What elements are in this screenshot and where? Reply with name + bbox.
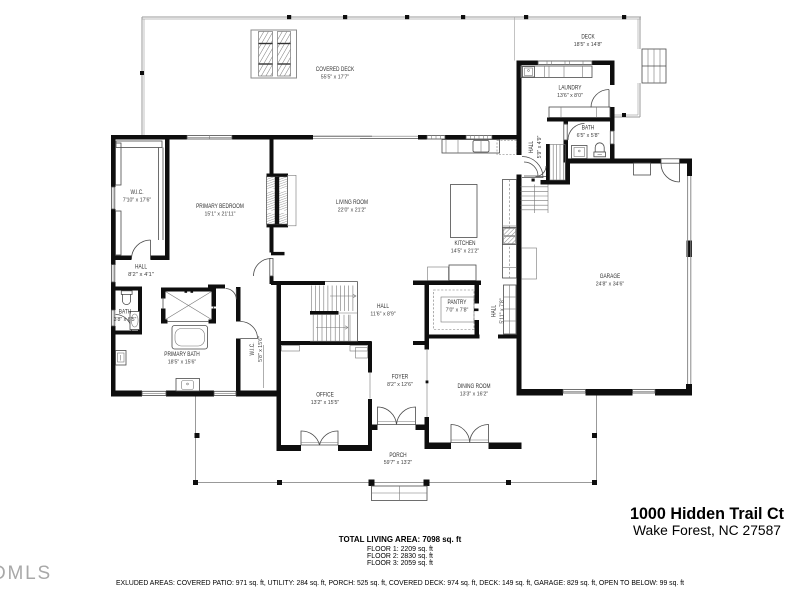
svg-text:PRIMARY BEDROOM: PRIMARY BEDROOM <box>196 203 244 210</box>
svg-text:Wake Forest, NC 27587: Wake Forest, NC 27587 <box>633 522 781 538</box>
svg-text:HALL: HALL <box>377 303 389 310</box>
svg-text:HALL: HALL <box>135 264 147 271</box>
svg-text:BATH: BATH <box>119 309 131 316</box>
svg-text:KITCHEN: KITCHEN <box>454 240 475 247</box>
svg-text:14'5" x 21'2": 14'5" x 21'2" <box>451 249 480 255</box>
svg-text:15'1" x 21'11": 15'1" x 21'11" <box>204 212 235 218</box>
svg-text:PRIMARY BATH: PRIMARY BATH <box>164 351 200 358</box>
svg-text:13'2" x 15'5": 13'2" x 15'5" <box>311 400 340 406</box>
svg-text:1000 Hidden Trail Ct: 1000 Hidden Trail Ct <box>630 505 785 523</box>
svg-text:18'5" x 14'8": 18'5" x 14'8" <box>574 42 603 48</box>
svg-text:LIVING ROOM: LIVING ROOM <box>336 199 368 206</box>
svg-text:24'8" x 34'6": 24'8" x 34'6" <box>596 282 625 288</box>
svg-text:PORCH: PORCH <box>389 452 406 459</box>
svg-text:7'10" x 17'6": 7'10" x 17'6" <box>123 198 152 204</box>
svg-text:COVERED DECK: COVERED DECK <box>316 66 355 73</box>
svg-text:W.I.C.: W.I.C. <box>130 189 143 196</box>
svg-text:8'2" x 12'6": 8'2" x 12'6" <box>387 382 413 388</box>
svg-text:HALL: HALL <box>528 141 535 153</box>
svg-text:HALL: HALL <box>491 305 498 317</box>
svg-text:W.I.C.: W.I.C. <box>249 342 256 355</box>
svg-text:FLOOR 2: 2830 sq. ft: FLOOR 2: 2830 sq. ft <box>367 553 433 560</box>
svg-text:DECK: DECK <box>581 34 595 41</box>
svg-text:5'11" x 7'8": 5'11" x 7'8" <box>500 298 506 323</box>
svg-text:BATH: BATH <box>582 125 594 132</box>
svg-text:DINING ROOM: DINING ROOM <box>457 383 490 390</box>
svg-text:3'8" x 6'5": 3'8" x 6'5" <box>114 317 137 323</box>
svg-text:FLOOR 1: 2209 sq. ft: FLOOR 1: 2209 sq. ft <box>367 546 433 553</box>
svg-text:TOTAL LIVING AREA: 7098 sq. ft: TOTAL LIVING AREA: 7098 sq. ft <box>339 535 462 544</box>
svg-text:13'3" x 16'2": 13'3" x 16'2" <box>460 392 489 398</box>
svg-text:8'2" x 4'1": 8'2" x 4'1" <box>128 272 154 278</box>
svg-text:DMLS: DMLS <box>0 563 52 584</box>
svg-text:OFFICE: OFFICE <box>316 392 334 399</box>
svg-text:5'9" x 4'9": 5'9" x 4'9" <box>537 136 543 159</box>
svg-text:LAUNDRY: LAUNDRY <box>559 85 582 92</box>
svg-text:EXLUDED AREAS: COVERED PATIO:: EXLUDED AREAS: COVERED PATIO: 971 sq. ft… <box>116 580 684 587</box>
svg-text:FLOOR 3: 2059 sq. ft: FLOOR 3: 2059 sq. ft <box>367 560 433 567</box>
svg-text:18'5" x 15'6": 18'5" x 15'6" <box>168 360 197 366</box>
svg-text:FOYER: FOYER <box>392 374 409 381</box>
svg-text:55'5" x 17'7": 55'5" x 17'7" <box>321 75 350 81</box>
svg-text:11'6" x 8'9": 11'6" x 8'9" <box>370 312 395 318</box>
svg-text:59'7" x 13'2": 59'7" x 13'2" <box>384 460 413 466</box>
svg-text:GARAGE: GARAGE <box>600 273 621 280</box>
svg-text:22'0" x 21'2": 22'0" x 21'2" <box>338 208 367 214</box>
svg-text:PANTRY: PANTRY <box>448 299 467 306</box>
svg-text:5'8" x 15'6": 5'8" x 15'6" <box>258 336 264 362</box>
svg-text:13'6" x 8'0": 13'6" x 8'0" <box>557 93 583 99</box>
svg-text:7'0" x 7'8": 7'0" x 7'8" <box>446 308 469 314</box>
svg-text:6'5" x 5'8": 6'5" x 5'8" <box>577 133 600 139</box>
